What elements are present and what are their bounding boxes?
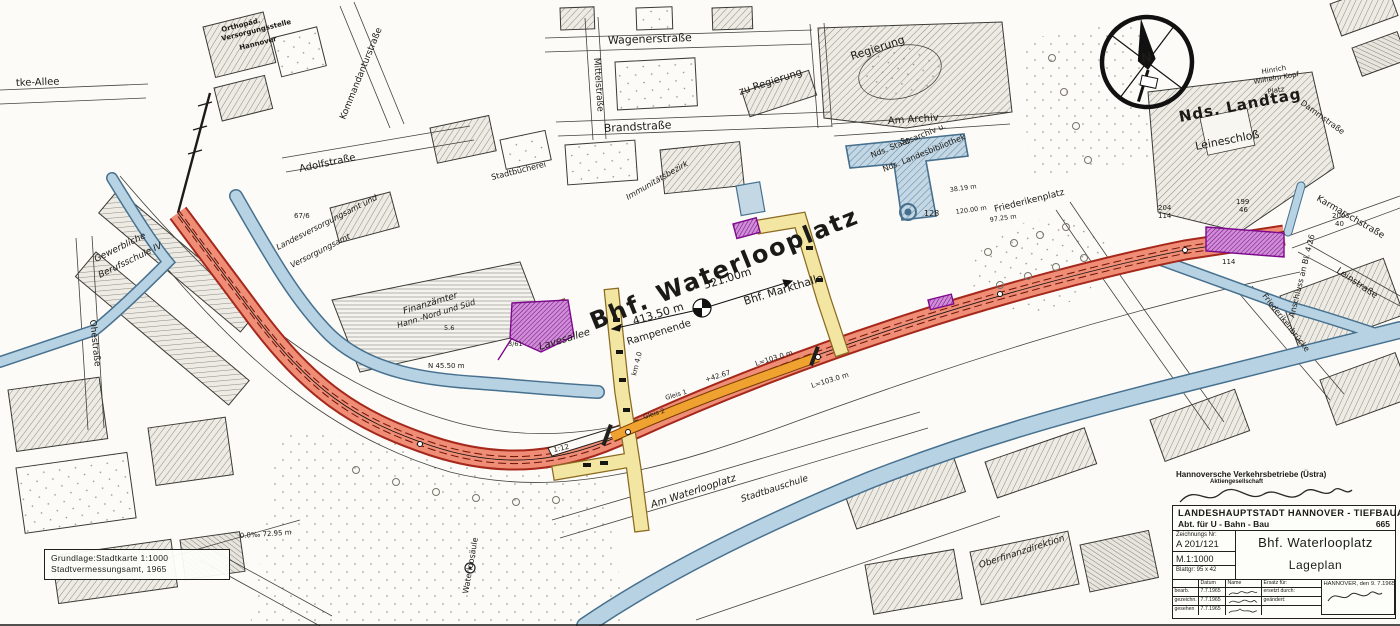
place-date: HANNOVER, den 9. 7.1965 bbox=[1324, 581, 1396, 587]
map-label: 3/61 bbox=[508, 340, 523, 348]
map-label: Friederikenplatz bbox=[993, 188, 1065, 215]
place-date-cell: HANNOVER, den 9. 7.1965 bbox=[1322, 580, 1395, 615]
ersetzt-label: ersetzt durch: bbox=[1262, 588, 1322, 597]
map-label: Kommandanturstraße bbox=[339, 26, 385, 121]
map-label: 40 bbox=[1335, 220, 1344, 228]
column-name: Name bbox=[1226, 580, 1262, 588]
map-label: 114 bbox=[1158, 212, 1172, 220]
row-signature bbox=[1228, 598, 1258, 606]
map-label: 128 bbox=[924, 209, 939, 218]
geaendert-label: geändert: bbox=[1262, 597, 1322, 606]
basemap-note-line2: Stadtvermessungsamt, 1965 bbox=[51, 564, 223, 575]
row-date: 7.7.1965 bbox=[1199, 588, 1226, 597]
ersatz-label: Ersatz für: bbox=[1262, 580, 1322, 588]
department-name: Abt. für U - Bahn - Bau bbox=[1178, 519, 1269, 529]
approval-signature bbox=[1324, 587, 1384, 607]
row-label: gezeichn. bbox=[1173, 597, 1199, 606]
map-label: 200 bbox=[1332, 212, 1345, 220]
map-label: Stadtbauschule bbox=[740, 474, 810, 505]
basemap-note-box: Grundlage:Stadtkarte 1:1000 Stadtvermess… bbox=[44, 549, 230, 580]
basemap-note-line1: Grundlage:Stadtkarte 1:1000 bbox=[51, 553, 223, 564]
row-date: 7.7.1965 bbox=[1199, 606, 1226, 615]
row-date: 7.7.1965 bbox=[1199, 597, 1226, 606]
map-label: 199 bbox=[1236, 198, 1249, 206]
drawing-number: A 201/121 bbox=[1176, 539, 1232, 550]
sheet-size: Blattgr: 95 x 42 bbox=[1173, 566, 1235, 579]
title-block-header: LANDESHAUPTSTADT HANNOVER - TIEFBAUAMT A… bbox=[1173, 506, 1395, 531]
scale-value: M.1:1000 bbox=[1173, 552, 1235, 566]
map-label: N 45.50 m bbox=[428, 362, 465, 370]
north-letter: N bbox=[1140, 50, 1153, 66]
operator-stamp: Hannoversche Verkehrsbetriebe (Üstra) Ak… bbox=[1176, 470, 1396, 508]
map-label: Karmarschstraße bbox=[1315, 194, 1387, 241]
drawing-subtitle: Lageplan bbox=[1236, 558, 1395, 572]
agency-name: LANDESHAUPTSTADT HANNOVER - TIEFBAUAMT bbox=[1178, 508, 1390, 518]
row-label: gesehen bbox=[1173, 606, 1199, 615]
map-label: 50 bbox=[900, 137, 910, 146]
map-label: km 4.0 bbox=[630, 351, 644, 376]
map-label: 38.19 m bbox=[949, 182, 977, 194]
title-block-title-area: Bhf. Waterlooplatz Lageplan bbox=[1236, 531, 1395, 579]
map-label: 46 bbox=[1239, 206, 1248, 214]
map-label: L=103.0 m bbox=[810, 371, 850, 390]
benchmark-symbol bbox=[693, 299, 711, 317]
row-signature bbox=[1228, 607, 1258, 615]
department-number: 665 bbox=[1376, 519, 1390, 529]
operator-name: Hannoversche Verkehrsbetriebe (Üstra) bbox=[1176, 470, 1396, 479]
map-label: 120.00 m bbox=[955, 204, 987, 216]
drawing-title: Bhf. Waterlooplatz bbox=[1236, 535, 1395, 550]
title-block: LANDESHAUPTSTADT HANNOVER - TIEFBAUAMT A… bbox=[1172, 505, 1396, 619]
drawing-number-label: Zeichnungs Nr: bbox=[1176, 532, 1232, 538]
map-label: 67/6 bbox=[294, 212, 310, 220]
map-label: 204 bbox=[1158, 204, 1172, 212]
column-datum: Datum bbox=[1199, 580, 1226, 588]
row-label: bearb. bbox=[1173, 588, 1199, 597]
map-label: Adolfstraße bbox=[298, 152, 356, 175]
map-label: 5.6 bbox=[444, 324, 454, 332]
map-label: tke-Allee bbox=[16, 76, 60, 89]
revision-table: Datum Name Ersatz für: HANNOVER, den 9. … bbox=[1173, 580, 1395, 615]
map-label: Bhf. Markthalle bbox=[742, 271, 825, 308]
map-label: Am Archiv bbox=[887, 112, 939, 127]
map-label: 97.25 m bbox=[989, 212, 1017, 224]
map-label: Wagenerstraße bbox=[608, 31, 693, 47]
map-label: Mittelstraße bbox=[591, 58, 605, 113]
row-signature bbox=[1228, 589, 1258, 597]
map-label: 114 bbox=[1222, 258, 1236, 266]
title-block-meta: Zeichnungs Nr: A 201/121 M.1:1000 Blattg… bbox=[1173, 531, 1236, 579]
scanned-site-plan: N Bhf. Waterlooplatz521.00mBhf. Markthal… bbox=[0, 0, 1400, 626]
